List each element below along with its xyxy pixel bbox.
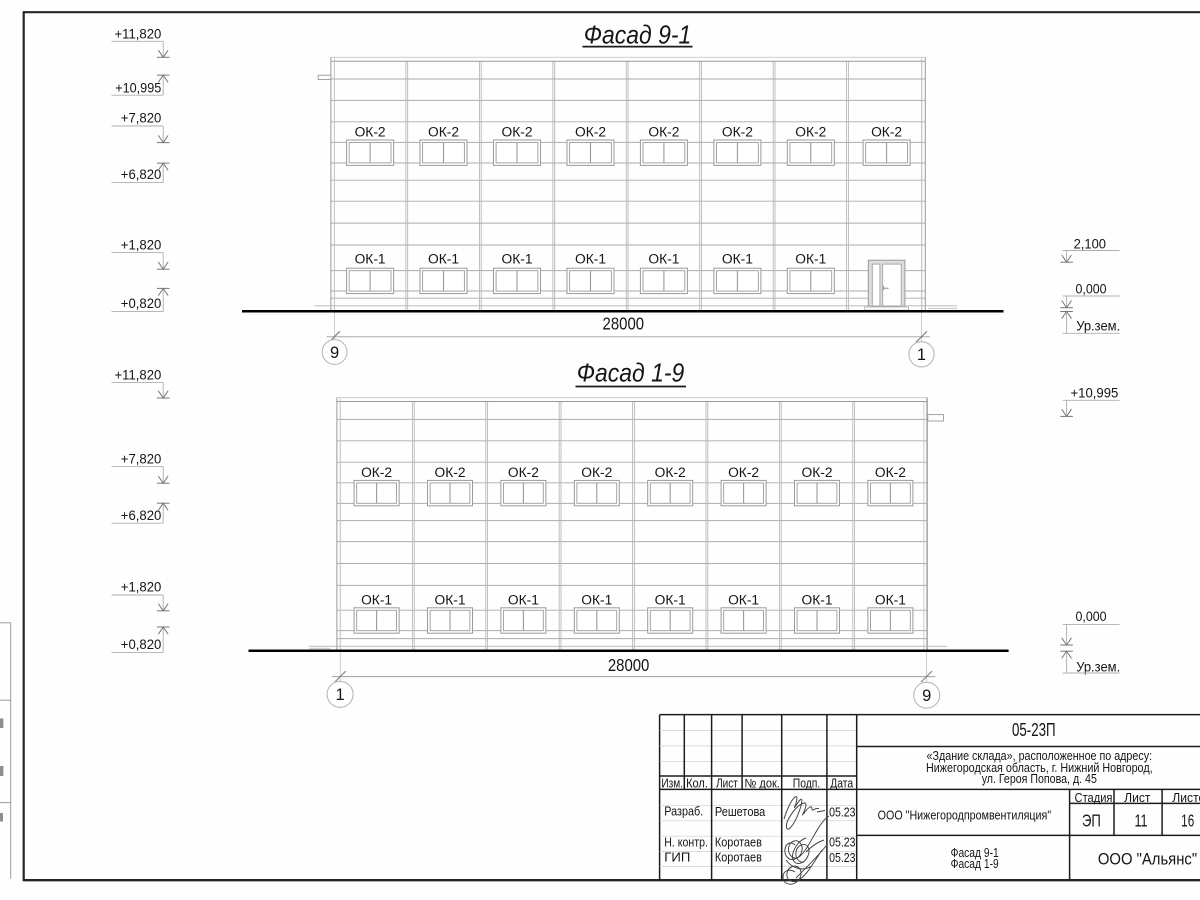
svg-text:+0,820: +0,820: [121, 637, 162, 652]
svg-text:05.23: 05.23: [829, 806, 855, 820]
svg-text:ОК-2: ОК-2: [508, 465, 539, 480]
svg-text:ГИП: ГИП: [664, 850, 690, 864]
svg-text:ОК-1: ОК-1: [802, 593, 833, 608]
svg-text:ОК-2: ОК-2: [802, 465, 833, 480]
svg-text:Лист: Лист: [716, 777, 738, 791]
svg-text:+11,820: +11,820: [115, 27, 162, 42]
svg-text:+1,820: +1,820: [121, 237, 162, 252]
svg-text:ОК-1: ОК-1: [655, 593, 686, 608]
svg-text:ОК-1: ОК-1: [875, 593, 906, 608]
svg-text:ОК-2: ОК-2: [435, 465, 466, 480]
svg-text:ОК-2: ОК-2: [361, 465, 392, 480]
svg-text:Ур.зем.: Ур.зем.: [1076, 318, 1120, 333]
svg-text:+7,820: +7,820: [121, 111, 162, 126]
svg-text:05.23: 05.23: [829, 851, 855, 865]
svg-text:Лист: Лист: [1124, 790, 1150, 805]
svg-text:ОК-2: ОК-2: [355, 125, 386, 140]
svg-text:+10,995: +10,995: [1071, 385, 1119, 400]
svg-text:11: 11: [1134, 811, 1147, 831]
svg-text:ОК-2: ОК-2: [648, 125, 679, 140]
svg-text:Фасад 9-1: Фасад 9-1: [584, 20, 692, 50]
svg-text:Фасад 1-9: Фасад 1-9: [951, 856, 999, 871]
svg-text:ул. Героя Попова, д. 45: ул. Героя Попова, д. 45: [982, 771, 1097, 786]
svg-text:9: 9: [330, 344, 339, 362]
svg-text:ОК-1: ОК-1: [728, 593, 759, 608]
svg-text:+1,820: +1,820: [121, 580, 162, 595]
svg-text:+7,820: +7,820: [121, 451, 162, 466]
svg-text:ОК-2: ОК-2: [428, 125, 459, 140]
svg-text:ОК-1: ОК-1: [435, 593, 466, 608]
svg-text:Дата: Дата: [830, 777, 853, 791]
svg-text:ОК-1: ОК-1: [575, 251, 606, 266]
svg-text:Подп.: Подп.: [793, 777, 821, 791]
svg-text:2,100: 2,100: [1074, 236, 1106, 251]
svg-text:Кол.: Кол.: [686, 777, 708, 791]
svg-text:ОК-2: ОК-2: [871, 125, 902, 140]
svg-text:Фасад 1-9: Фасад 1-9: [577, 357, 685, 387]
svg-text:ОК-1: ОК-1: [355, 251, 386, 266]
svg-text:Н. контр.: Н. контр.: [664, 835, 708, 849]
svg-text:ОК-2: ОК-2: [795, 125, 826, 140]
svg-text:ОК-1: ОК-1: [508, 593, 539, 608]
svg-text:28000: 28000: [603, 314, 645, 334]
svg-text:Стадия: Стадия: [1075, 790, 1113, 805]
svg-text:28000: 28000: [608, 655, 650, 675]
svg-text:№ док.: № док.: [744, 777, 780, 791]
svg-text:+10,995: +10,995: [115, 80, 161, 95]
svg-text:ОК-1: ОК-1: [581, 593, 612, 608]
svg-text:Коротаев: Коротаев: [715, 835, 762, 849]
svg-text:ООО "Нижегородпромвентиляция": ООО "Нижегородпромвентиляция": [878, 807, 1052, 822]
svg-text:ОК-1: ОК-1: [795, 251, 826, 266]
svg-text:ОК-2: ОК-2: [875, 465, 906, 480]
svg-text:+6,820: +6,820: [121, 508, 162, 523]
svg-text:ОК-2: ОК-2: [581, 465, 612, 480]
svg-text:ОК-1: ОК-1: [361, 593, 392, 608]
svg-text:ОК-2: ОК-2: [575, 125, 606, 140]
svg-text:1: 1: [336, 686, 345, 704]
svg-text:9: 9: [922, 687, 931, 705]
svg-text:0,000: 0,000: [1076, 282, 1107, 297]
svg-text:1: 1: [917, 346, 926, 364]
svg-text:Решетова: Решетова: [715, 805, 765, 819]
svg-text:0,000: 0,000: [1076, 609, 1107, 624]
svg-text:ОК-2: ОК-2: [722, 125, 753, 140]
svg-text:Ур.зем.: Ур.зем.: [1076, 659, 1120, 674]
svg-text:Листов: Листов: [1172, 790, 1200, 805]
svg-text:05.23: 05.23: [829, 836, 855, 850]
svg-text:ОК-1: ОК-1: [648, 251, 679, 266]
svg-text:+11,820: +11,820: [115, 367, 162, 382]
svg-text:ОК-2: ОК-2: [502, 125, 533, 140]
svg-text:Разраб.: Разраб.: [664, 805, 703, 819]
svg-text:Изм.: Изм.: [661, 777, 683, 791]
svg-text:ОК-1: ОК-1: [722, 251, 753, 266]
svg-text:ОК-2: ОК-2: [728, 465, 759, 480]
svg-text:+0,820: +0,820: [121, 296, 162, 311]
svg-text:ЭП: ЭП: [1082, 811, 1101, 831]
svg-text:ОК-1: ОК-1: [502, 251, 533, 266]
svg-text:ОК-1: ОК-1: [428, 251, 459, 266]
svg-text:16: 16: [1181, 811, 1194, 831]
svg-text:ООО "Альянс": ООО "Альянс": [1098, 851, 1197, 869]
svg-text:Коротаев: Коротаев: [715, 851, 762, 865]
svg-text:+6,820: +6,820: [121, 167, 162, 182]
svg-text:05-23П: 05-23П: [1012, 720, 1056, 740]
svg-text:ОК-2: ОК-2: [655, 465, 686, 480]
